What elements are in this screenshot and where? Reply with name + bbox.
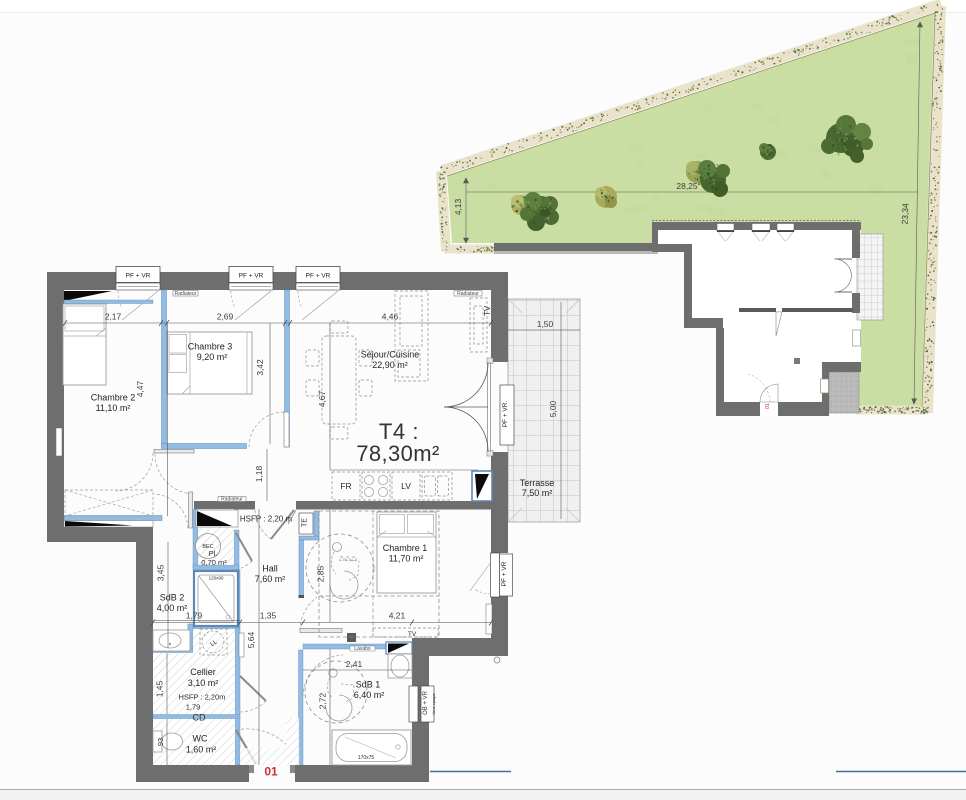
svg-text:9,20 m²: 9,20 m² [197,352,228,362]
svg-text:0,70 m²: 0,70 m² [201,558,227,567]
svg-text:3,45: 3,45 [156,564,166,581]
svg-text:01: 01 [264,765,278,779]
svg-text:5,00: 5,00 [548,400,558,417]
svg-text:4,00 m²: 4,00 m² [157,603,188,613]
svg-text:Radiateur: Radiateur [457,291,479,297]
svg-text:HSFP : 2,20m: HSFP : 2,20m [179,693,226,702]
svg-text:1,45: 1,45 [155,680,165,697]
svg-text:3,10 m²: 3,10 m² [188,678,219,688]
svg-text:Cellier: Cellier [190,667,216,677]
svg-text:Chambre 3: Chambre 3 [188,342,233,352]
svg-text:11,70 m²: 11,70 m² [389,554,424,564]
svg-text:1,79: 1,79 [186,611,203,621]
svg-text:4,67: 4,67 [317,390,327,407]
svg-text:HSFP : 2,20 m: HSFP : 2,20 m [240,515,293,524]
svg-text:Chambre 2: Chambre 2 [91,393,136,403]
svg-text:LV: LV [401,481,411,491]
svg-text:1,79: 1,79 [186,703,201,712]
svg-text:4,46: 4,46 [382,312,399,322]
svg-text:Radiateur: Radiateur [221,497,243,503]
svg-text:2,41: 2,41 [346,659,363,669]
svg-text:78,30m²: 78,30m² [356,441,440,466]
svg-text:22,90 m²: 22,90 m² [372,360,408,370]
svg-text:Séjour/Cuisine: Séjour/Cuisine [361,350,420,360]
svg-text:11,10 m²: 11,10 m² [96,403,131,413]
svg-text:4,13: 4,13 [453,198,463,215]
svg-text:TV: TV [483,305,492,316]
svg-text:170x75: 170x75 [358,755,375,761]
svg-text:4,47: 4,47 [135,380,145,397]
svg-text:PF + VR: PF + VR [239,273,264,280]
svg-text:CD: CD [193,713,206,723]
svg-text:120x90: 120x90 [209,576,224,581]
svg-text:Radiateur: Radiateur [175,291,197,297]
svg-text:1,50: 1,50 [537,319,554,329]
svg-text:5,64: 5,64 [246,631,256,648]
svg-text:7,60 m²: 7,60 m² [255,574,286,584]
svg-text:2,72: 2,72 [318,692,328,709]
svg-text:01: 01 [765,403,771,409]
svg-text:SdB 1: SdB 1 [356,680,381,690]
svg-text:Hall: Hall [262,564,278,574]
svg-text:TV: TV [408,631,417,638]
svg-text:1,60 m²: 1,60 m² [186,745,217,755]
svg-text:Lavabo: Lavabo [354,646,371,652]
svg-text:SdB 2: SdB 2 [160,593,185,603]
svg-text:Terrasse: Terrasse [520,478,555,488]
svg-text:PF + VR.: PF + VR. [502,401,509,428]
svg-text:FR: FR [340,481,351,491]
svg-text:3,42: 3,42 [255,359,265,376]
svg-text:2,17: 2,17 [105,312,122,322]
svg-text:2,85: 2,85 [316,565,326,582]
svg-text:4,21: 4,21 [389,611,406,621]
svg-text:7,50 m²: 7,50 m² [522,488,553,498]
svg-text:WC: WC [193,734,208,744]
svg-text:OB + VR: OB + VR [423,690,429,715]
svg-text:TE: TE [302,518,309,527]
svg-text:PF + VR: PF + VR [306,273,331,280]
svg-text:93: 93 [156,738,165,746]
svg-text:Verre opaque: Verre opaque [432,693,436,715]
svg-text:Pl.: Pl. [209,549,218,558]
svg-text:Chambre 1: Chambre 1 [383,543,428,553]
svg-text:2,69: 2,69 [217,312,234,322]
svg-text:6,40 m²: 6,40 m² [354,690,385,700]
svg-text:PF + VR: PF + VR [126,273,151,280]
svg-text:PF + VR: PF + VR [501,561,508,586]
svg-text:1,18: 1,18 [254,465,264,482]
svg-text:23,34: 23,34 [899,203,910,225]
svg-text:1,35: 1,35 [260,611,277,621]
